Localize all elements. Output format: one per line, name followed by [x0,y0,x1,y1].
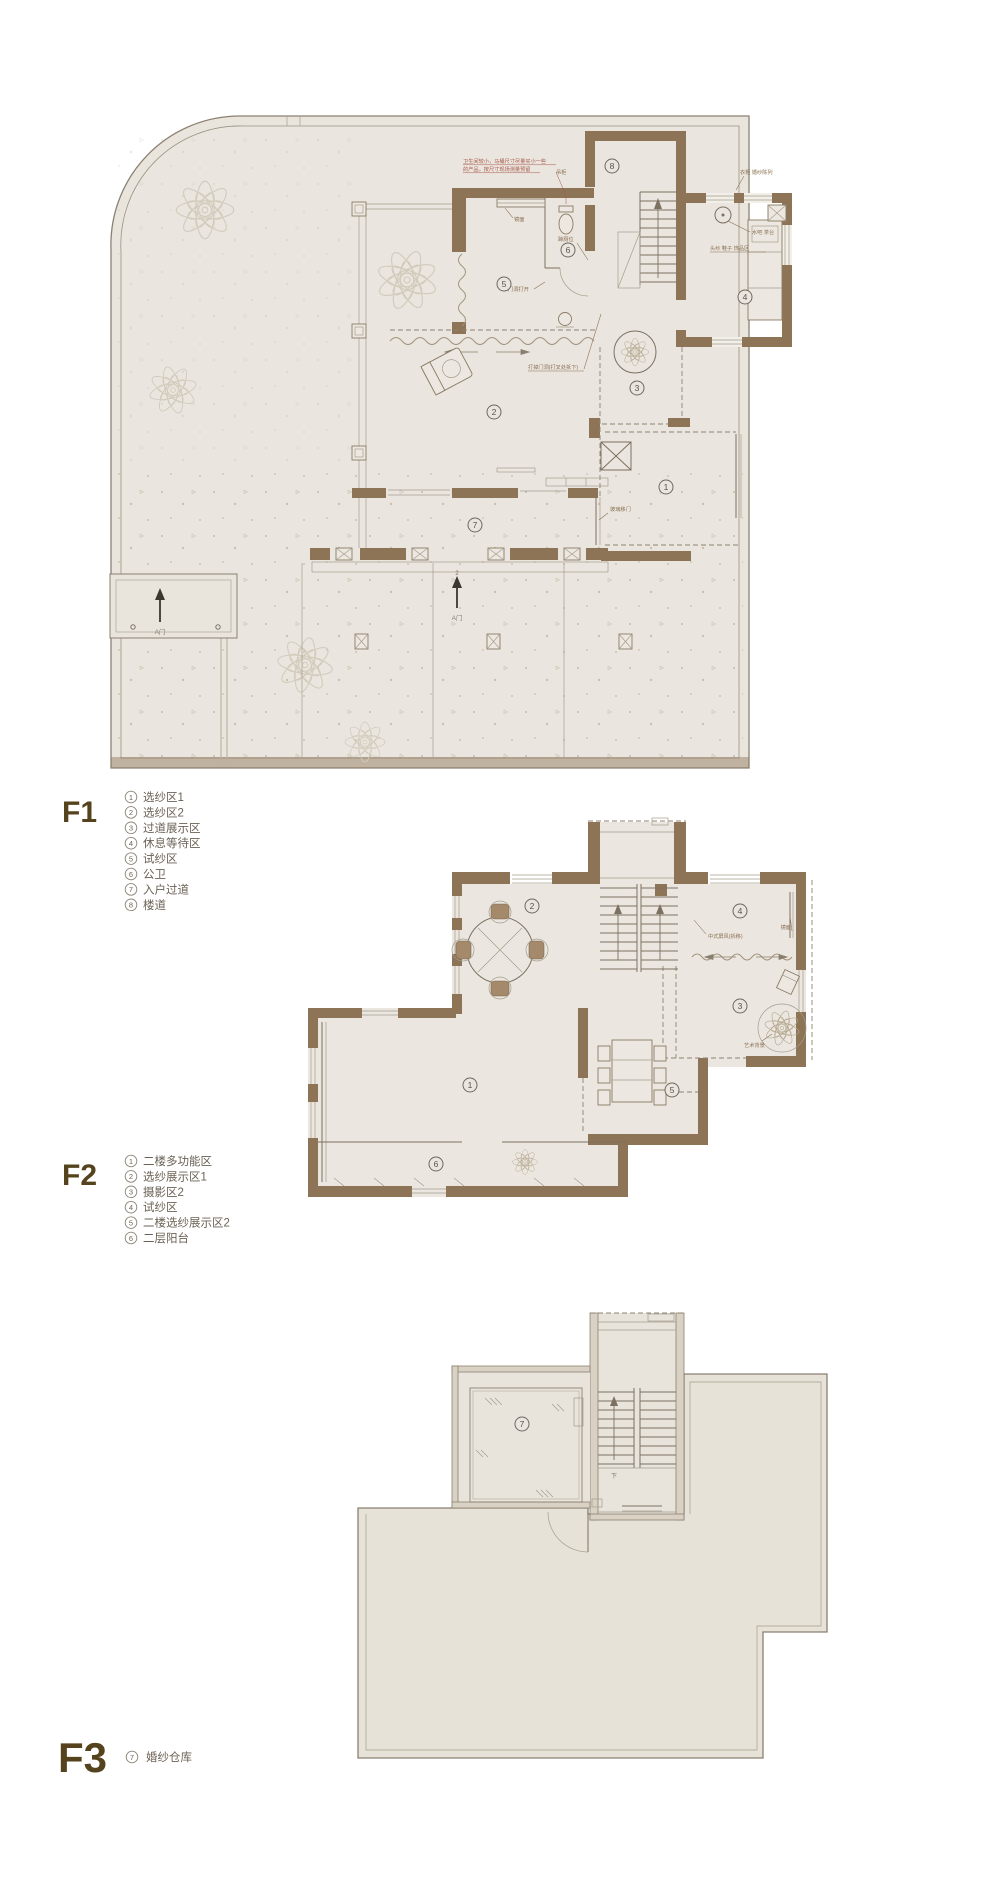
svg-text:2: 2 [492,407,497,417]
svg-text:4: 4 [129,839,133,848]
washbasin-icon [559,313,572,326]
room-marker-2: 2 [487,405,501,419]
svg-text:1: 1 [129,793,133,802]
svg-text:选纱区1: 选纱区1 [143,791,184,804]
room-marker-6: 6 [561,243,575,257]
f3-legend: F3 7婚纱仓库 [58,1734,192,1781]
floor-title-f2: F2 [62,1159,97,1192]
svg-text:试纱区: 试纱区 [143,853,178,866]
mirror-label: 镜面 [781,923,791,931]
svg-text:试纱区: 试纱区 [143,1201,178,1214]
screen-label: 中式屏风(拆移) [708,932,743,940]
svg-text:2: 2 [129,808,133,817]
stair-down-label: 下 [611,1473,617,1480]
legend-row: 5二楼选纱展示区2 [125,1216,230,1230]
f3-building: 下 7 [358,1313,827,1758]
svg-text:7: 7 [473,520,478,530]
f1-legend: F1 1选纱区1 2选纱区2 3过道展示区 4休息等待区 5试纱区 6公卫 7入… [62,791,201,912]
svg-text:6: 6 [129,1234,133,1243]
svg-text:5: 5 [670,1085,675,1095]
svg-text:7: 7 [520,1419,525,1429]
svg-text:4: 4 [743,292,748,302]
legend-row: 5试纱区 [125,853,177,866]
floor-title-f3: F3 [58,1734,107,1781]
f3-room7 [452,1366,590,1508]
legend-row: 6二层阳台 [125,1231,189,1245]
floorplan-sheet: A门 [0,0,1000,1883]
legend-row: 3过道展示区 [125,821,200,835]
legend-row: 4试纱区 [125,1201,177,1214]
svg-text:3: 3 [129,1188,133,1197]
legend-row: 1选纱区1 [125,791,184,804]
room-marker-5: 5 [497,277,511,291]
svg-text:2: 2 [530,901,535,911]
legend-row: 6公卫 [125,868,166,881]
svg-text:1: 1 [129,1157,133,1166]
gate-main-label: A门 [452,613,463,622]
squat-label: 蹲厕位 [558,235,574,243]
svg-text:8: 8 [610,161,615,171]
legend-row: 3摄影区2 [125,1185,184,1199]
room-marker-1: 1 [463,1078,477,1092]
svg-text:二层阳台: 二层阳台 [143,1231,189,1245]
f1-left-gate-block: A门 [110,574,237,638]
f2-building: 中式屏风(拆移) 镜面 艺术背景 1 2 3 4 5 6 [308,818,812,1197]
knock-wall-label: 打掉门洞(打叉处拆下) [528,363,578,371]
note-line2: 的产品，按尺寸现场测量预留 [463,165,530,173]
cabinet-left-label: 吊柜 [556,168,566,176]
svg-text:选纱区2: 选纱区2 [143,806,184,819]
room-marker-3: 3 [630,381,644,395]
svg-text:6: 6 [129,870,133,879]
water-bar-label: 水吧 茶台 [752,228,774,236]
f2-dining-table [598,1040,666,1105]
svg-text:二楼多功能区: 二楼多功能区 [143,1154,212,1168]
art-backdrop-label: 艺术背景 [744,1041,765,1049]
note-line1: 卫生间较小，马桶尺寸尽量买小一些 [463,157,546,165]
room-marker-2: 2 [525,899,539,913]
svg-text:3: 3 [129,824,133,833]
legend-row: 7婚纱仓库 [126,1750,192,1764]
svg-text:休息等待区: 休息等待区 [143,836,201,850]
site-bottom-wall [111,757,749,768]
floor-title-f1: F1 [62,796,97,829]
accessories-label: 头纱 鞋子 饰品区 [710,244,749,252]
svg-text:2: 2 [129,1172,133,1181]
svg-text:二楼选纱展示区2: 二楼选纱展示区2 [143,1216,230,1230]
svg-text:3: 3 [738,1001,743,1011]
toilet-tank [559,206,573,212]
svg-text:公卫: 公卫 [143,868,166,881]
plans-drawing: A门 [0,0,1000,1883]
room-marker-7: 7 [468,518,482,532]
svg-text:5: 5 [129,854,133,863]
room-marker-4: 4 [733,904,747,918]
svg-text:4: 4 [738,906,743,916]
svg-text:7: 7 [130,1753,134,1762]
svg-text:6: 6 [434,1159,439,1169]
svg-text:入户过道: 入户过道 [143,882,189,896]
svg-text:4: 4 [129,1203,133,1212]
svg-text:8: 8 [129,901,133,910]
legend-row: 2选纱展示区1 [125,1170,207,1183]
legend-row: 4休息等待区 [125,836,200,850]
svg-text:摄影区2: 摄影区2 [143,1185,184,1199]
svg-text:5: 5 [129,1218,133,1227]
legend-row: 8楼道 [125,898,166,912]
legend-row: 1二楼多功能区 [125,1154,212,1168]
f2-legend: F2 1二楼多功能区 2选纱展示区1 3摄影区2 4试纱区 5二楼选纱展示区2 … [62,1154,230,1245]
svg-text:6: 6 [566,245,571,255]
room-marker-5: 5 [665,1083,679,1097]
svg-text:过道展示区: 过道展示区 [143,821,201,835]
svg-text:7: 7 [129,885,133,894]
svg-text:选纱展示区1: 选纱展示区1 [143,1170,207,1183]
legend-row: 2选纱区2 [125,806,184,819]
glass-door-label: 玻璃移门 [610,505,631,513]
room-marker-3: 3 [733,999,747,1013]
gate-left-label: A门 [155,627,166,636]
room-marker-4: 4 [738,290,752,304]
cabinet-right-label: 衣柜 婚纱陈列 [740,168,773,176]
svg-text:3: 3 [635,383,640,393]
svg-text:婚纱仓库: 婚纱仓库 [146,1750,192,1764]
svg-text:楼道: 楼道 [143,898,166,912]
svg-text:5: 5 [502,279,507,289]
room-marker-6: 6 [429,1157,443,1171]
mirror-label: 镜面 [514,215,524,223]
room-marker-8: 8 [605,159,619,173]
room-marker-1: 1 [659,480,673,494]
svg-text:1: 1 [664,482,669,492]
f1-site-plan: A门 [110,116,749,768]
svg-text:1: 1 [468,1080,473,1090]
toilet-icon [559,214,573,234]
room-marker-7: 7 [515,1417,529,1431]
legend-row: 7入户过道 [125,882,189,896]
